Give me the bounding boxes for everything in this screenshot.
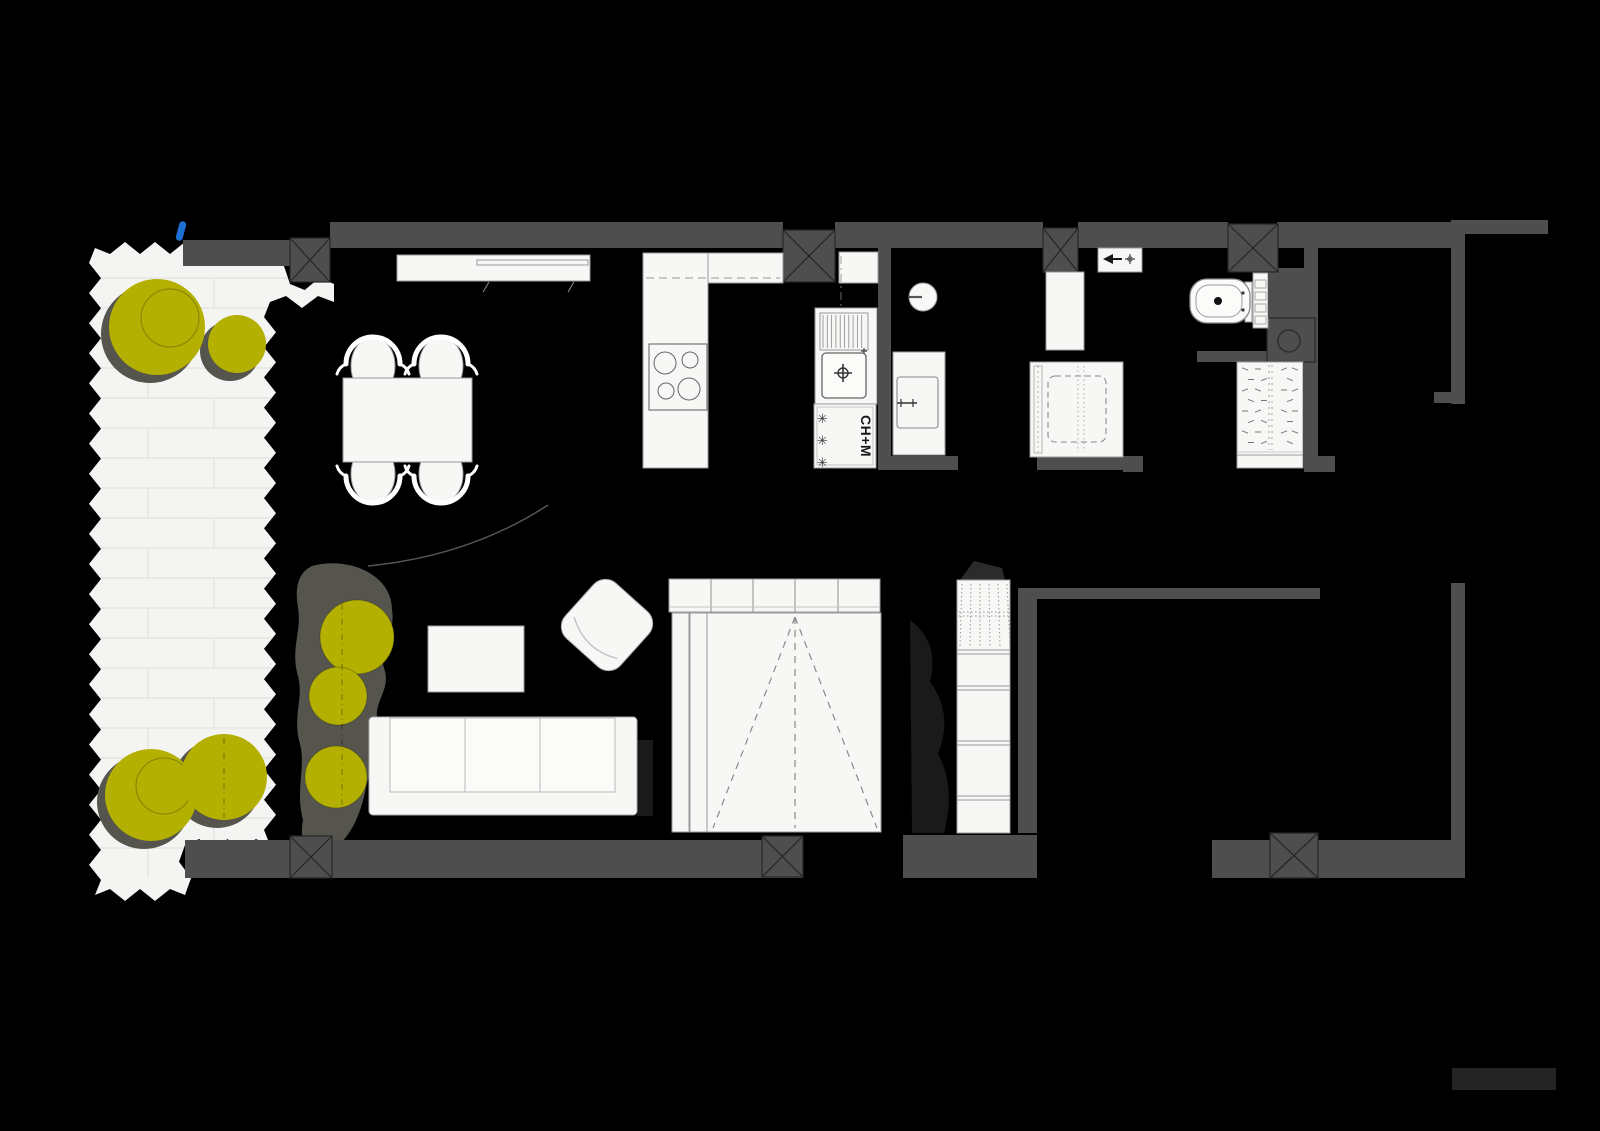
wall-segment — [903, 835, 1037, 878]
column-x — [290, 836, 332, 878]
sink-basin — [822, 353, 866, 398]
appliance-label: CH+M — [858, 415, 874, 457]
wardrobe-side-panel — [672, 613, 689, 832]
wall-segment — [183, 240, 290, 266]
sleeping-area — [669, 579, 1010, 833]
wall-segment — [878, 456, 958, 470]
wall-segment — [1078, 222, 1228, 248]
coffee-table — [428, 626, 524, 692]
wall-segment — [1304, 456, 1335, 472]
plant-icon — [320, 600, 394, 674]
tree-icon — [105, 749, 197, 841]
wall-segment — [1277, 222, 1451, 248]
frost-symbol: ✳ — [817, 456, 828, 471]
dining-table — [343, 378, 472, 462]
wall-segment — [1197, 351, 1269, 362]
console-shelf — [397, 255, 590, 292]
floor-plan-canvas: ✳ ✳ ✳ CH+M — [0, 0, 1600, 1131]
kitchen: ✳ ✳ ✳ CH+M — [643, 252, 878, 471]
wardrobe-side-panel — [690, 613, 707, 832]
sofa-cushion — [540, 718, 615, 792]
kitchen-counter-top — [839, 252, 878, 283]
kitchen-counter-top — [708, 253, 783, 283]
wall-segment — [1018, 588, 1037, 833]
cooktop — [649, 344, 707, 410]
sofa-cushion — [465, 718, 540, 792]
column-x — [1270, 833, 1318, 878]
entrance-marker — [175, 220, 187, 241]
plant-icon — [309, 667, 367, 725]
column-x — [762, 836, 803, 877]
shower-drain-block — [1267, 318, 1315, 362]
wall-segment — [878, 240, 891, 462]
washing-machine — [1030, 362, 1123, 457]
wall-segment — [1212, 840, 1465, 878]
murphy-bed — [707, 613, 881, 832]
wall-segment — [1451, 583, 1465, 873]
wall-segment — [1018, 588, 1320, 599]
overhead-cabinet-row — [669, 579, 880, 612]
shower-tray — [1237, 362, 1303, 468]
wall-segment — [1451, 220, 1548, 234]
wall-segment — [1123, 456, 1143, 472]
shower-drain — [1267, 318, 1315, 362]
column-x — [1228, 224, 1278, 272]
sofa-shadow — [637, 740, 653, 816]
sofa — [369, 717, 637, 815]
flush-hole — [1214, 297, 1222, 305]
shelf-top-shadow — [960, 561, 1005, 580]
scale-bar — [1452, 1068, 1556, 1090]
dining-area — [337, 255, 590, 503]
fridge-microwave-cabinet: ✳ ✳ ✳ CH+M — [814, 404, 876, 471]
wall-segment — [1451, 232, 1465, 404]
shelving-unit — [957, 580, 1010, 833]
tree-icon — [109, 279, 205, 375]
wall-segment — [1037, 456, 1123, 470]
washbasin — [893, 352, 945, 455]
wall-segment — [1269, 268, 1305, 320]
door-swing-arc — [368, 505, 548, 566]
utility-room — [893, 248, 1142, 457]
wall-segment — [835, 222, 1043, 248]
frost-symbol: ✳ — [817, 412, 828, 427]
tree-icon — [208, 315, 266, 373]
wall-segment — [1434, 392, 1451, 403]
column-x — [1043, 228, 1078, 272]
pouf — [555, 573, 660, 678]
column-x — [783, 230, 835, 282]
toilet — [1190, 273, 1268, 328]
living-area — [369, 573, 659, 815]
wall-segment — [330, 222, 783, 248]
plant-icon — [305, 746, 367, 808]
column-x — [290, 238, 330, 282]
storage-cabinet — [1046, 272, 1084, 350]
floor-plan: ✳ ✳ ✳ CH+M — [0, 0, 1600, 1131]
sofa-cushion — [390, 718, 465, 792]
wall-light — [909, 283, 937, 311]
water-valve-box — [1098, 248, 1142, 272]
frost-symbol: ✳ — [817, 434, 828, 449]
wall-segment — [185, 840, 803, 878]
tree-icon — [181, 734, 267, 820]
shelf-shadow — [910, 620, 949, 833]
